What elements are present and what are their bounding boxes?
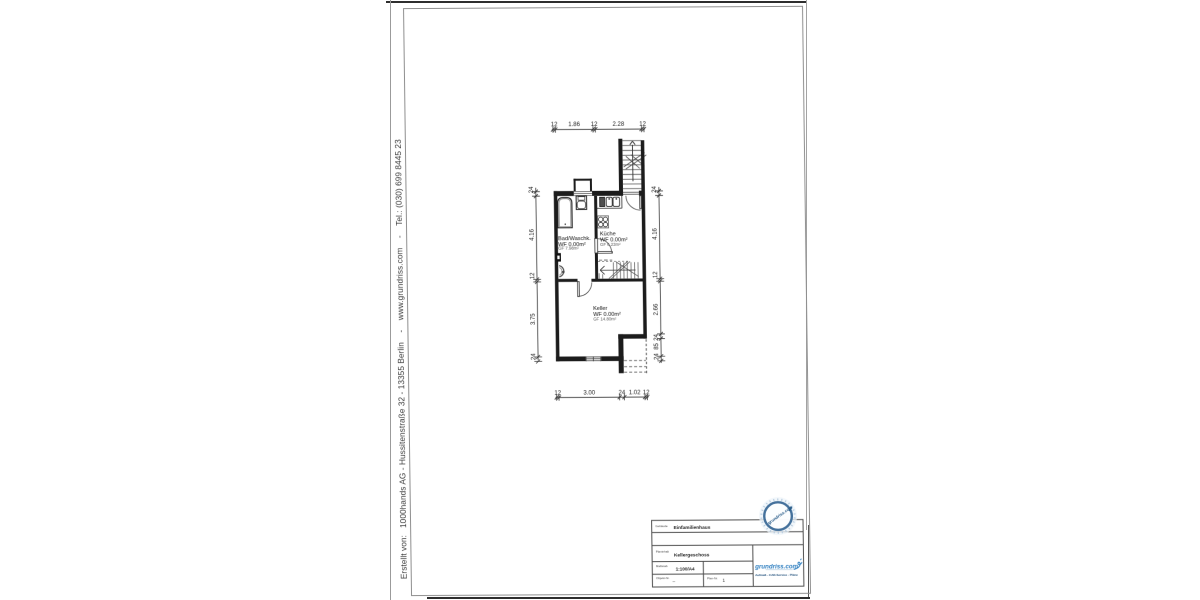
- svg-text:Einfamilienhaus: Einfamilienhaus: [674, 525, 711, 531]
- svg-text:Aufmaß - CAD-Service - Pläne: Aufmaß - CAD-Service - Pläne: [755, 573, 798, 577]
- svg-text:Objekt-Nr.: Objekt-Nr.: [656, 576, 670, 580]
- svg-text:Planinhalt: Planinhalt: [656, 549, 669, 553]
- svg-text:12: 12: [554, 391, 561, 397]
- svg-text:12: 12: [551, 122, 558, 128]
- svg-text:24: 24: [529, 186, 535, 193]
- svg-text:12: 12: [643, 390, 650, 396]
- svg-text:4.16: 4.16: [529, 228, 535, 240]
- svg-text:3.00: 3.00: [583, 391, 595, 397]
- svg-text:12: 12: [530, 272, 536, 279]
- svg-text:Kellergeschoss: Kellergeschoss: [674, 552, 710, 558]
- svg-text:12: 12: [653, 271, 659, 278]
- svg-text:24: 24: [652, 185, 658, 192]
- svg-text:1.86: 1.86: [568, 122, 580, 128]
- svg-text:3.75: 3.75: [530, 313, 536, 325]
- svg-text:12: 12: [639, 122, 646, 128]
- svg-text:1:100/A4: 1:100/A4: [676, 566, 695, 571]
- svg-text:24: 24: [654, 333, 660, 340]
- svg-text:24: 24: [619, 390, 626, 396]
- svg-text:Plan-Nr.: Plan-Nr.: [707, 576, 718, 580]
- svg-text:GF 7.98m²: GF 7.98m²: [558, 246, 579, 251]
- svg-text:12: 12: [591, 122, 598, 128]
- svg-text:4.16: 4.16: [652, 227, 658, 239]
- svg-text:GF 14.80m²: GF 14.80m²: [593, 316, 617, 321]
- svg-text:Maßstab: Maßstab: [656, 564, 668, 568]
- svg-text:2.28: 2.28: [613, 122, 625, 128]
- svg-text:_: _: [672, 577, 676, 582]
- svg-text:2.66: 2.66: [653, 303, 659, 315]
- svg-text:Gebäude: Gebäude: [655, 524, 668, 528]
- svg-text:24: 24: [531, 353, 537, 360]
- svg-text:1: 1: [722, 578, 725, 583]
- svg-text:1.02: 1.02: [629, 390, 641, 396]
- svg-text:85: 85: [654, 342, 660, 349]
- svg-text:24: 24: [654, 353, 660, 360]
- svg-text:GF 6.23m²: GF 6.23m²: [600, 242, 621, 247]
